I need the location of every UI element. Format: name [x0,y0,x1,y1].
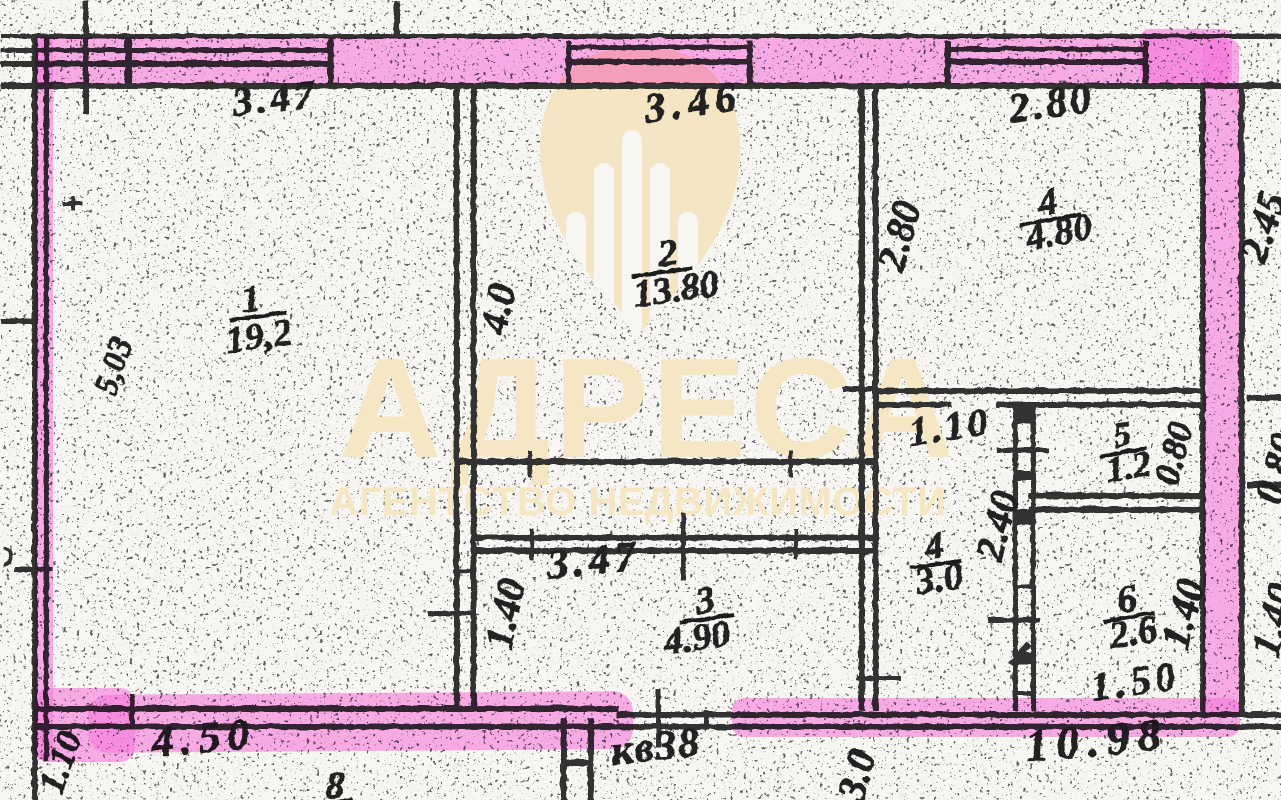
svg-text:3.0: 3.0 [911,554,965,602]
svg-text:АДРЕСА: АДРЕСА [339,329,957,488]
svg-text:2.6: 2.6 [1104,607,1159,657]
svg-text:1.2: 1.2 [1102,442,1153,489]
svg-text:АГЕНТСТВО НЕДВИЖИМОСТИ: АГЕНТСТВО НЕДВИЖИМОСТИ [329,480,946,524]
svg-text:8: 8 [325,764,344,800]
svg-text:3.47: 3.47 [543,532,642,588]
